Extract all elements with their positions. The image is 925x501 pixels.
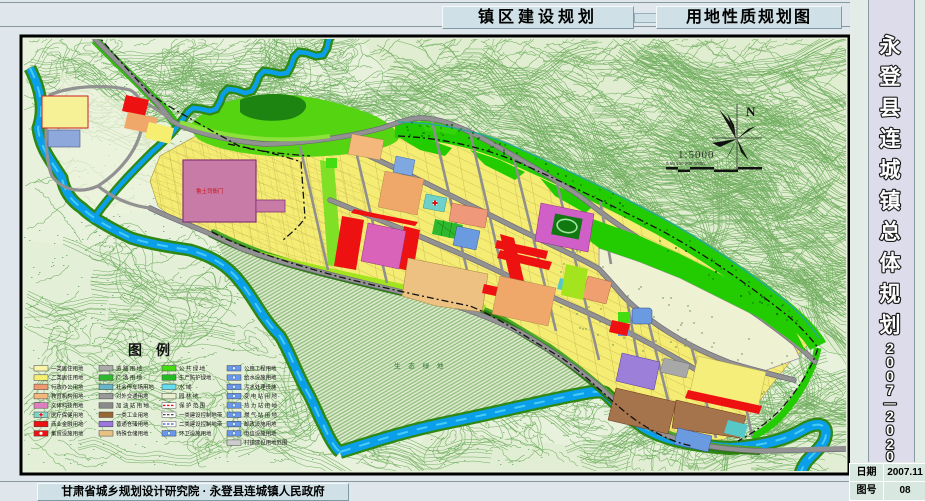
svg-text:普通仓储用地: 普通仓储用地 (116, 420, 149, 428)
svg-text:给水设施用地: 给水设施用地 (244, 374, 277, 382)
svg-text:集贸设施用地: 集贸设施用地 (51, 429, 84, 437)
svg-text:环卫设施用地: 环卫设施用地 (179, 429, 212, 437)
svg-text:二类建设控制地带: 二类建设控制地带 (179, 420, 223, 428)
svg-text:公用工程用地: 公用工程用地 (244, 364, 277, 372)
svg-text:保 护 范 围: 保 护 范 围 (179, 402, 205, 410)
svg-text:划: 划 (880, 314, 901, 337)
svg-text:热 力 站 用 地: 热 力 站 用 地 (244, 402, 278, 410)
svg-text:园 林 地: 园 林 地 (179, 392, 199, 400)
svg-text:电信设施用地: 电信设施用地 (244, 429, 277, 437)
svg-text:水 域: 水 域 (179, 383, 192, 391)
svg-text:生产防护绿地: 生产防护绿地 (179, 374, 212, 382)
svg-text:登: 登 (879, 65, 902, 89)
svg-text:村镇建设用地范围: 村镇建设用地范围 (244, 439, 287, 447)
svg-text:特殊仓储用地: 特殊仓储用地 (116, 429, 149, 437)
svg-text:医疗保健用地: 医疗保健用地 (51, 411, 84, 419)
svg-text:体: 体 (880, 252, 902, 275)
svg-text:连: 连 (880, 127, 902, 151)
svg-text:总: 总 (880, 220, 901, 244)
svg-text:县: 县 (880, 97, 901, 120)
svg-text:对外交通用地: 对外交通用地 (116, 392, 149, 400)
svg-text:生 态 绿 地: 生 态 绿 地 (394, 361, 446, 370)
svg-text:邮政设施用地: 邮政设施用地 (244, 420, 277, 428)
svg-text:一类居住用地: 一类居住用地 (51, 364, 84, 372)
svg-text:城: 城 (880, 158, 901, 182)
svg-text:公 共 绿 地: 公 共 绿 地 (179, 364, 206, 372)
svg-text:文体科技用地: 文体科技用地 (51, 402, 84, 410)
svg-text:鲁土司衙门: 鲁土司衙门 (196, 187, 224, 195)
svg-text:0 50 100 200 40: 0 50 100 200 400m (666, 161, 705, 166)
svg-text:广 场 用 地: 广 场 用 地 (116, 374, 143, 382)
svg-text:1:5000: 1:5000 (678, 149, 715, 161)
svg-text:N: N (746, 104, 756, 119)
svg-text:污水处理设施: 污水处理设施 (244, 383, 277, 391)
svg-text:燃 气 站 用 地: 燃 气 站 用 地 (244, 411, 278, 419)
svg-text:商业金融用地: 商业金融用地 (51, 420, 84, 428)
svg-text:变 电 站 用 地: 变 电 站 用 地 (244, 392, 278, 400)
svg-text:道 路 用 地: 道 路 用 地 (116, 364, 143, 372)
svg-text:镇: 镇 (880, 190, 901, 213)
svg-text:教育机构用地: 教育机构用地 (51, 392, 84, 400)
svg-text:一类建设控制地带: 一类建设控制地带 (179, 411, 223, 419)
svg-text:行政办公用地: 行政办公用地 (51, 383, 84, 391)
svg-text:永: 永 (879, 35, 901, 58)
svg-text:一类工业用地: 一类工业用地 (116, 411, 149, 419)
svg-text:图例: 图例 (128, 342, 184, 358)
svg-text:0: 0 (886, 448, 894, 464)
svg-text:社会停车场用地: 社会停车场用地 (116, 383, 154, 391)
svg-text:加 油 站 用 地: 加 油 站 用 地 (116, 402, 150, 410)
svg-text:二类居住用地: 二类居住用地 (51, 374, 84, 382)
svg-text:规: 规 (880, 283, 901, 306)
